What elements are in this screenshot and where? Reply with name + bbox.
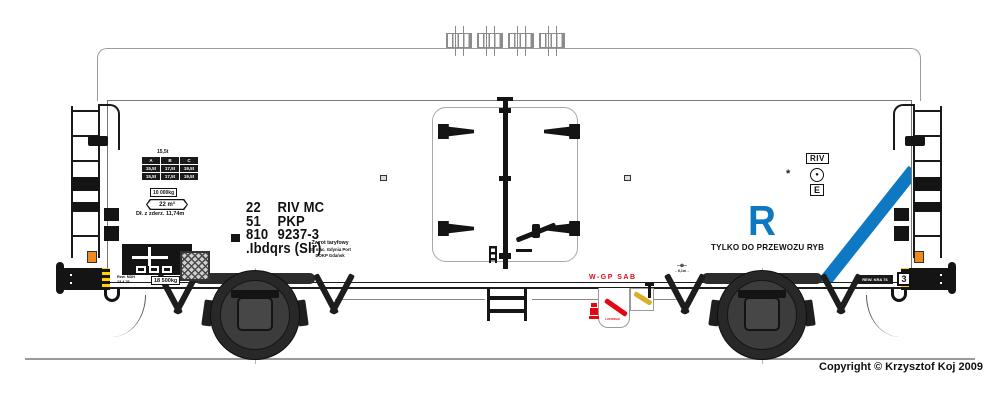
buffer-bolt	[70, 274, 72, 276]
volume-plate: 22 m³	[146, 199, 188, 210]
ferry-mark-circle: ●	[810, 168, 824, 182]
end-footstep	[894, 208, 909, 221]
roof-hatch	[508, 33, 534, 48]
end-footstep	[104, 208, 119, 221]
buffer-warning-stripes	[102, 268, 110, 290]
end-footstep	[104, 226, 119, 241]
fish-logo-r: R	[748, 200, 776, 242]
copyright-note: Copyright © Krzysztof Koj 2009	[805, 361, 983, 373]
rail-line	[25, 358, 975, 360]
end-footstep	[894, 226, 909, 241]
class-marker-square	[231, 234, 240, 242]
door-mini-ladder	[489, 246, 497, 263]
door-step	[516, 249, 532, 252]
revision-plate: REW. KRA 76	[857, 275, 893, 284]
e-plate: E	[810, 184, 824, 196]
buffer-plate	[948, 262, 956, 294]
buffer	[907, 268, 949, 290]
length-inscription: Dł. z zderz. 11,74m	[136, 211, 184, 217]
roof-hatch	[477, 33, 503, 48]
roof-hatch	[446, 33, 472, 48]
door-bar-bracket	[499, 253, 511, 259]
latch-keeper	[380, 175, 387, 181]
boarding-step	[487, 287, 527, 321]
weight-plate: 10 000kg	[150, 188, 177, 197]
drain-handle	[648, 285, 651, 298]
vent-grille	[180, 251, 210, 281]
roof-hatch	[539, 33, 565, 48]
ladder-platform	[71, 202, 100, 211]
home-station-block: Zwrot taryfowy St. mac. Gdynia Port DOKP…	[293, 240, 367, 259]
handbrake-crank	[88, 136, 108, 146]
tare-plate: 18 500kg	[151, 276, 180, 285]
door-bar-bracket	[499, 176, 511, 181]
ladder-platform	[913, 202, 942, 211]
weight-mark: 15,5t	[157, 149, 168, 155]
axle-distance-mark: –⊕– ←6,1m→	[668, 264, 696, 274]
panel-cross	[148, 247, 151, 266]
brake-release-label: LUZOWAĆ	[605, 317, 620, 321]
buffer	[63, 268, 105, 290]
revision-small-text: Rew. NDH 23.4.76	[117, 275, 135, 284]
wagon-technical-drawing: 15,5t ABC 15,5t17,5t19,5t 15,5t17,5t19,5…	[0, 0, 1000, 408]
door-bar-bracket	[499, 108, 511, 113]
ladder-platform	[71, 177, 100, 191]
load-limit-table: ABC 15,5t17,5t19,5t 15,5t17,5t19,5t	[142, 157, 198, 180]
latch-keeper	[624, 175, 631, 181]
buffer-bolt	[940, 282, 942, 284]
brake-hose	[866, 295, 900, 337]
panel-window	[149, 266, 159, 273]
axlebox	[237, 297, 273, 331]
handbrake-crank	[905, 136, 925, 146]
blue-diagonal-stripe	[815, 166, 912, 283]
door-handle-pivot	[532, 224, 540, 238]
brake-type-label: W-GP SAB	[589, 274, 637, 281]
door-locking-bar	[503, 101, 508, 269]
panel-window	[136, 266, 146, 273]
riv-plate: RIV	[806, 153, 829, 164]
brake-valve-icon	[589, 303, 599, 319]
panel-window	[162, 266, 172, 273]
roof	[97, 48, 921, 101]
grid-number-plate: 3	[897, 272, 911, 286]
fish-slogan: TYLKO DO PRZEWOZU RYB	[711, 242, 824, 252]
buffer-bolt	[940, 274, 942, 276]
maintenance-symbol: *	[786, 168, 790, 180]
buffer-bolt	[70, 282, 72, 284]
brake-rod	[335, 299, 485, 300]
axlebox	[744, 297, 780, 331]
drain-handle-top	[645, 283, 654, 286]
door-bar-bracket	[497, 97, 513, 101]
brake-hose	[112, 295, 146, 337]
ladder-platform	[913, 177, 942, 191]
